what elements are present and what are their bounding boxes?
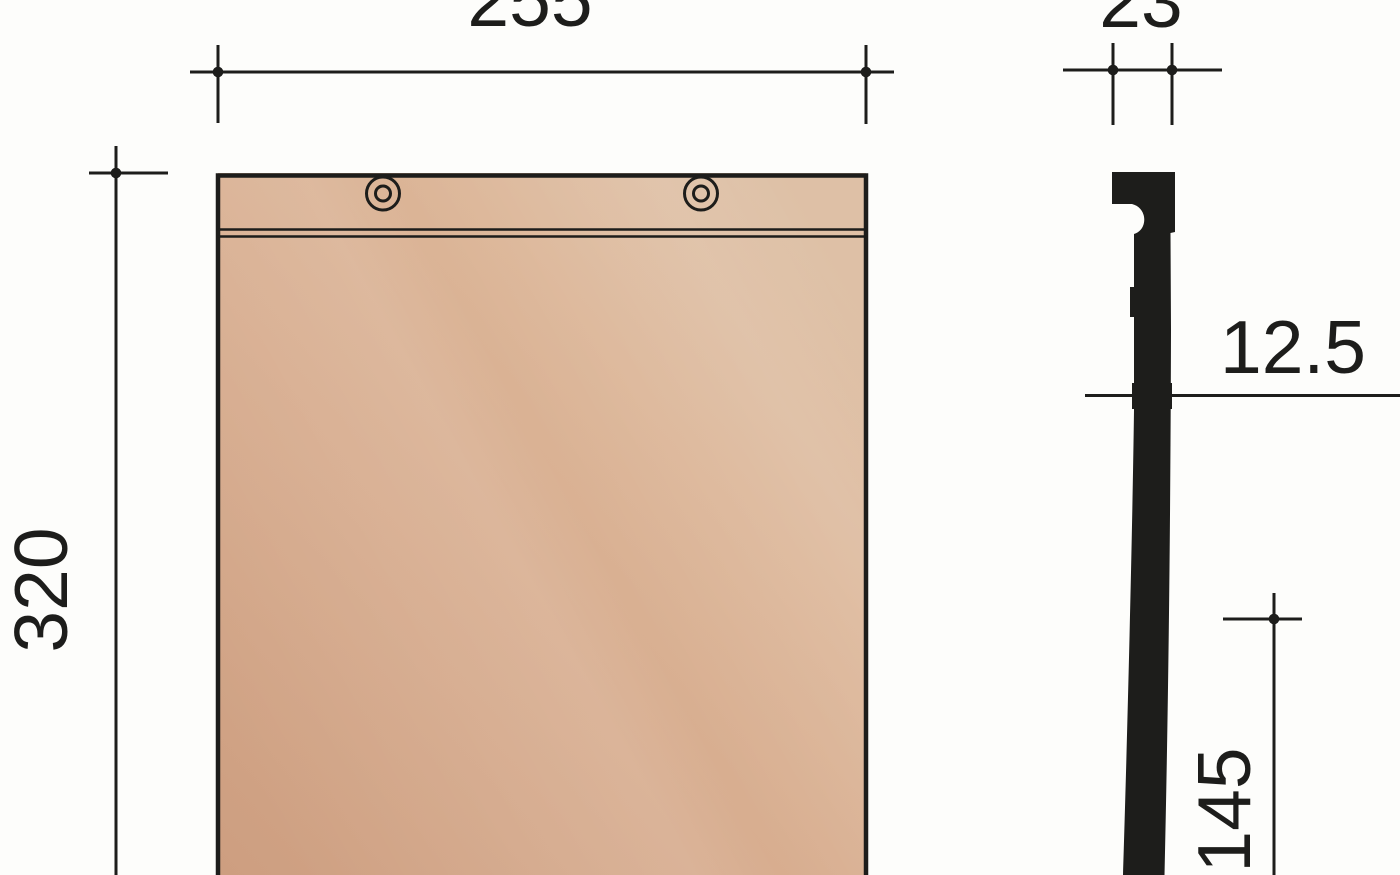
dimension-width: 255 [190, 0, 894, 124]
dimension-width-label: 255 [467, 0, 592, 42]
dimension-head-dot-left [1108, 65, 1119, 76]
tile-section-shape [1112, 172, 1175, 875]
dimension-head-dot-right [1167, 65, 1178, 76]
dimension-head-label: 23 [1099, 0, 1182, 43]
dimension-head-width: 23 [1063, 0, 1222, 125]
dimension-lower-dot-top [1269, 614, 1280, 625]
tile-front-view [218, 173, 866, 875]
tile-technical-drawing: 255 23 320 12.5 145 [0, 0, 1400, 875]
dimension-height: 320 [0, 146, 168, 875]
dimension-width-dot-left [213, 67, 224, 78]
dimension-lower-length: 145 [1182, 593, 1302, 875]
tile-side-profile [1112, 172, 1175, 875]
dimension-thickness-label: 12.5 [1220, 305, 1366, 389]
tile-face-sheen [218, 173, 866, 875]
dimension-width-dot-right [861, 67, 872, 78]
dimension-lower-label: 145 [1182, 747, 1266, 872]
dimension-height-label: 320 [0, 527, 83, 652]
dimension-height-dot-top [111, 168, 122, 179]
dimension-thickness: 12.5 [1085, 305, 1400, 409]
